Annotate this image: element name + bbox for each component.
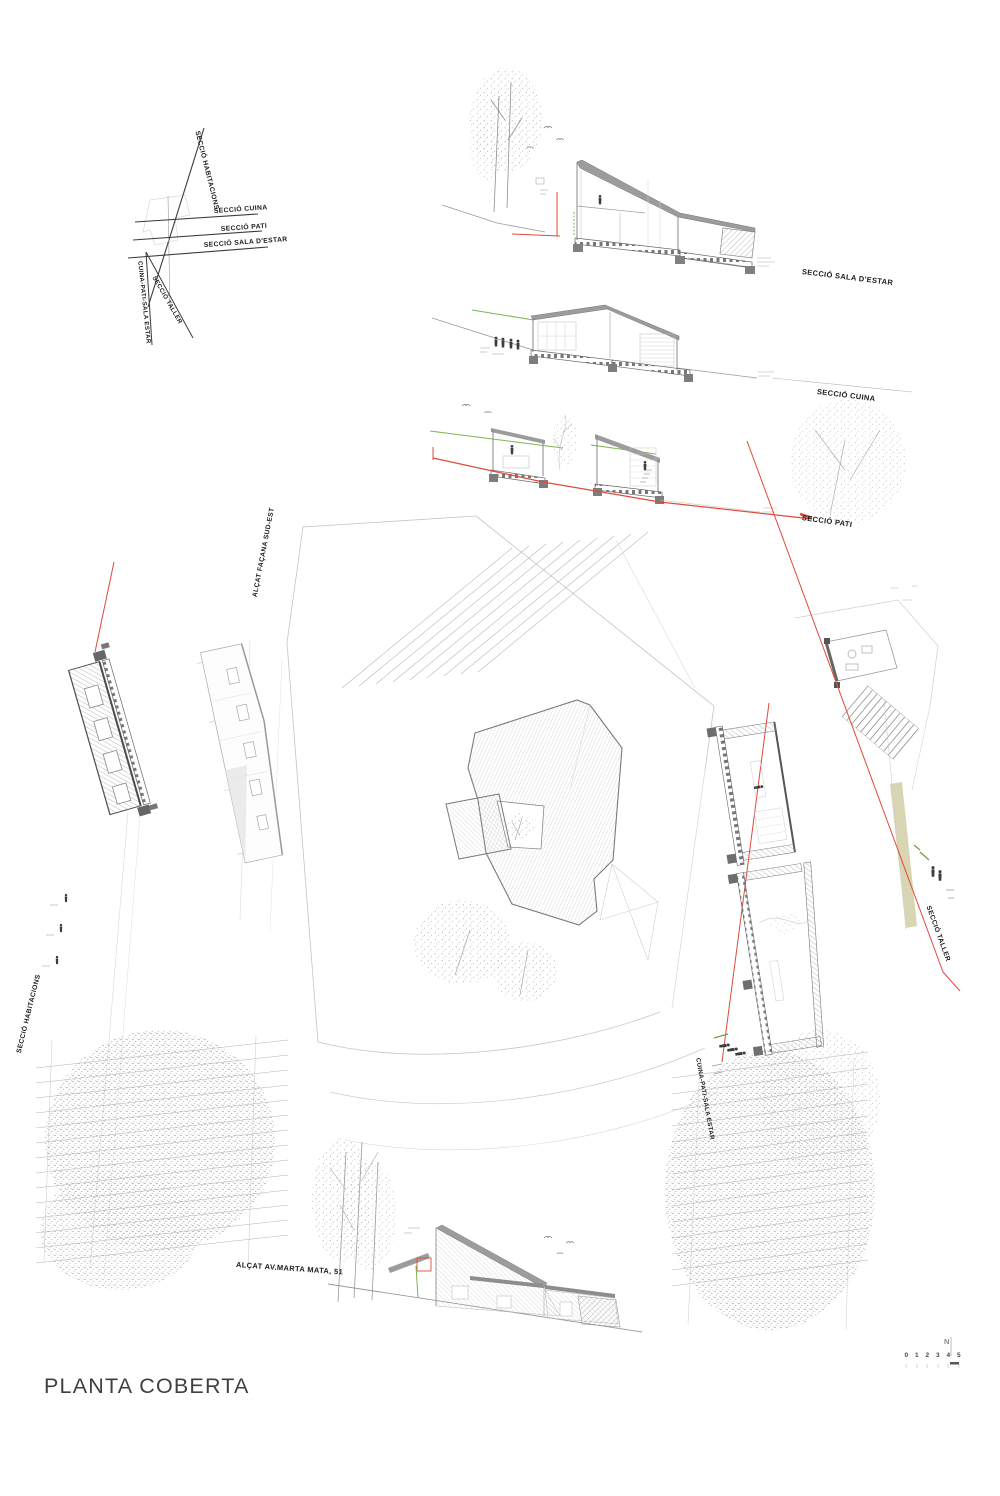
linework-canvas <box>0 0 1000 1496</box>
sheet-title: PLANTA COBERTA <box>44 1374 250 1399</box>
scale-tick-2: 2 <box>922 1352 933 1359</box>
scale-tick-4: 4 <box>943 1352 954 1359</box>
drawing-sheet: SECCIÓ HABITACIONS SECCIÓ CUINA SECCIÓ P… <box>0 0 1000 1496</box>
elevation-av-marta-mata-drawing <box>312 1138 642 1332</box>
tree-cluster <box>790 400 906 524</box>
scale-tick-3: 3 <box>933 1352 944 1359</box>
section-cuina-pati-sala-estar-drawing <box>703 703 840 1074</box>
elevation-sud-est-drawing <box>195 640 293 930</box>
section-cuina-drawing <box>432 305 912 392</box>
scale-tick-1: 1 <box>912 1352 923 1359</box>
scale-bar: 0 1 2 3 4 5 <box>901 1352 964 1359</box>
section-sala-destar-drawing <box>442 68 775 274</box>
foliage-left <box>36 1030 288 1290</box>
scale-tick-0: 0 <box>901 1352 912 1359</box>
key-diagram <box>128 128 268 345</box>
north-label: N <box>944 1337 949 1346</box>
scale-tick-5: 5 <box>954 1352 965 1359</box>
